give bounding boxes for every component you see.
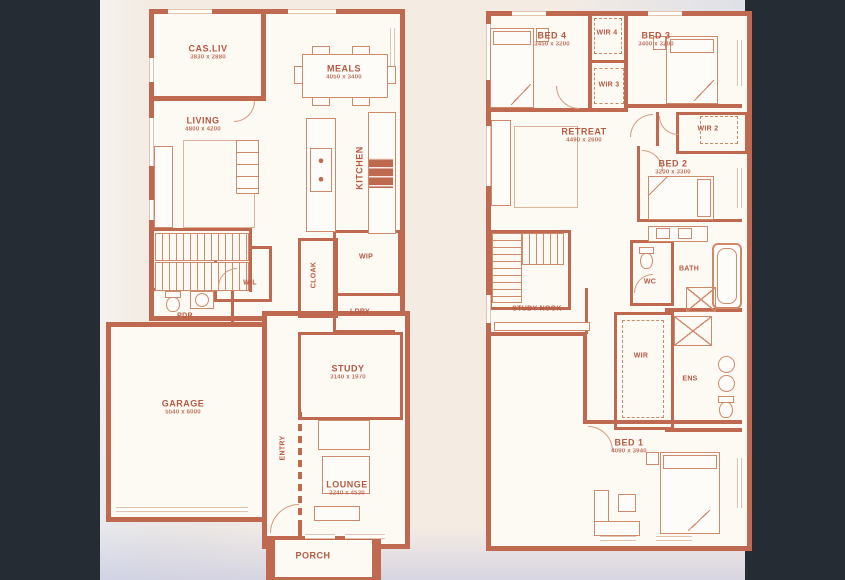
window bbox=[648, 11, 682, 16]
garage-door-opening bbox=[116, 507, 248, 512]
sofa-icon bbox=[594, 521, 640, 536]
room-name: WIR 3 bbox=[599, 82, 620, 89]
room-label-pdr: PDR bbox=[177, 313, 193, 322]
room-label-bed3: BED 3 3400 x 3200 bbox=[638, 31, 674, 50]
room-label-wil: WIL bbox=[243, 280, 257, 289]
wall bbox=[333, 288, 336, 332]
window bbox=[168, 9, 212, 14]
room-name: BED 3 bbox=[641, 31, 670, 41]
desk-icon bbox=[494, 322, 590, 331]
room-label-wc: WC bbox=[644, 279, 656, 288]
room-label-retreat: RETREAT 4490 x 2600 bbox=[561, 127, 606, 146]
room-name: LOUNGE bbox=[326, 480, 368, 490]
room-label-lounge: LOUNGE 3240 x 4530 bbox=[326, 480, 368, 499]
bathtub-inner bbox=[717, 248, 737, 304]
room-name: WC bbox=[644, 279, 656, 286]
room-label-bed2: BED 2 3200 x 3300 bbox=[655, 159, 691, 178]
room-name: PDR bbox=[177, 313, 193, 320]
room-name: WIL bbox=[243, 280, 257, 287]
room-label-wir2: WIR 2 bbox=[698, 126, 719, 135]
robe-icon bbox=[622, 320, 664, 418]
chair-icon bbox=[312, 46, 330, 55]
bed-fold-line bbox=[688, 510, 710, 531]
bed-fold-line bbox=[694, 80, 714, 101]
room-name: BATH bbox=[679, 266, 699, 273]
toilet-icon bbox=[166, 297, 180, 312]
left-dark-band bbox=[0, 0, 100, 580]
window bbox=[305, 534, 335, 539]
window bbox=[656, 536, 692, 541]
wall bbox=[583, 332, 587, 424]
garage-outline bbox=[106, 322, 268, 522]
room-label-ens: ENS bbox=[682, 376, 697, 385]
chair-icon bbox=[352, 46, 370, 55]
room-dims: 4490 x 2600 bbox=[561, 138, 606, 146]
basin-icon bbox=[678, 228, 692, 239]
room-dims: 5540 x 6000 bbox=[162, 410, 205, 418]
basin-icon bbox=[195, 293, 209, 307]
pillow-icon bbox=[697, 179, 711, 217]
room-label-wir3: WIR 3 bbox=[599, 82, 620, 91]
window bbox=[486, 295, 491, 323]
room-dims: 3200 x 3300 bbox=[655, 170, 691, 178]
shower-icon bbox=[674, 316, 712, 346]
room-name: GARAGE bbox=[162, 399, 205, 409]
room-name: ENS bbox=[682, 376, 697, 383]
window bbox=[149, 58, 154, 82]
wall bbox=[588, 60, 628, 63]
room-name: ENTRY bbox=[280, 436, 287, 461]
room-label-kitchen: KITCHEN bbox=[354, 146, 365, 190]
room-label-ldry: LDRY bbox=[350, 309, 370, 318]
chair-icon bbox=[352, 97, 370, 106]
stairs bbox=[492, 233, 522, 303]
room-label-entry: ENTRY bbox=[280, 436, 289, 461]
wip-outline bbox=[333, 230, 401, 296]
wall bbox=[154, 228, 252, 231]
wall bbox=[588, 108, 628, 112]
room-label-cloak: CLOAK bbox=[311, 262, 320, 288]
basin-icon bbox=[718, 356, 735, 373]
stairs bbox=[522, 233, 564, 265]
window bbox=[737, 40, 742, 86]
room-label-wir4: WIR 4 bbox=[597, 30, 618, 39]
room-name: RETREAT bbox=[561, 127, 606, 137]
room-name: KITCHEN bbox=[354, 146, 364, 190]
room-name: BED 1 bbox=[614, 438, 643, 448]
sofa-icon bbox=[154, 146, 173, 228]
window bbox=[345, 534, 385, 539]
shelf-unit-icon bbox=[236, 140, 259, 194]
room-dims: 3240 x 4530 bbox=[326, 491, 368, 499]
room-dims: 3400 x 3200 bbox=[638, 42, 674, 50]
room-dims: 3830 x 2880 bbox=[188, 55, 227, 63]
room-name: WIR 4 bbox=[597, 30, 618, 37]
room-name: BED 4 bbox=[537, 31, 566, 41]
pantry-shelves bbox=[369, 158, 393, 188]
room-name: MEALS bbox=[327, 64, 361, 74]
room-name: CLOAK bbox=[311, 262, 318, 288]
bed-fold-line bbox=[648, 176, 668, 196]
room-name: WIR 2 bbox=[698, 126, 719, 133]
room-name: STUDY NOOK bbox=[512, 306, 562, 313]
room-name: WIP bbox=[359, 254, 373, 261]
wall bbox=[583, 420, 742, 424]
tv-unit-icon bbox=[314, 506, 360, 521]
room-name: CAS.LIV bbox=[188, 44, 227, 54]
toilet-icon bbox=[640, 253, 653, 269]
room-label-garage: GARAGE 5540 x 6000 bbox=[162, 399, 205, 418]
room-dims: 3140 x 1970 bbox=[330, 375, 366, 383]
chair-icon bbox=[312, 97, 330, 106]
window bbox=[737, 168, 742, 208]
room-name: STUDY bbox=[331, 364, 364, 374]
window bbox=[512, 11, 546, 16]
chair-icon bbox=[387, 66, 396, 84]
sofa-icon bbox=[491, 120, 511, 206]
room-label-bed4: BED 4 3450 x 3200 bbox=[534, 31, 570, 50]
bedside-table-icon bbox=[646, 452, 659, 465]
room-dims: 4090 x 3940 bbox=[611, 449, 647, 457]
room-name: PORCH bbox=[295, 550, 330, 560]
wall bbox=[665, 428, 742, 432]
room-label-meals: MEALS 4050 x 3400 bbox=[326, 64, 362, 83]
right-dark-band bbox=[745, 0, 845, 580]
pillow-icon bbox=[670, 39, 714, 53]
basin-icon bbox=[718, 375, 735, 392]
window bbox=[737, 458, 742, 508]
pillow-icon bbox=[663, 455, 717, 469]
room-label-study: STUDY 3140 x 1970 bbox=[330, 364, 366, 383]
room-dims: 4800 x 4200 bbox=[185, 127, 221, 135]
chair-icon bbox=[294, 66, 303, 84]
side-table-icon bbox=[618, 494, 636, 512]
shower-icon bbox=[686, 287, 716, 312]
pillow-icon bbox=[493, 31, 531, 45]
room-label-living: LIVING 4800 x 4200 bbox=[185, 116, 221, 135]
window bbox=[288, 9, 336, 14]
room-label-bed1: BED 1 4090 x 3940 bbox=[611, 438, 647, 457]
room-label-bath: BATH bbox=[679, 266, 699, 275]
room-name: WIR bbox=[634, 353, 649, 360]
room-label-casliv: CAS.LIV 3830 x 2880 bbox=[188, 44, 227, 63]
bathtub-icon bbox=[712, 243, 742, 309]
wall bbox=[491, 332, 587, 336]
room-dims: 3450 x 3200 bbox=[534, 42, 570, 50]
room-label-studynook: STUDY NOOK bbox=[512, 306, 562, 315]
room-name: BED 2 bbox=[658, 159, 687, 169]
room-dims: 4050 x 3400 bbox=[326, 75, 362, 83]
cooktop-icon bbox=[310, 148, 332, 192]
sofa-icon bbox=[318, 420, 370, 450]
toilet-icon bbox=[719, 402, 733, 418]
window bbox=[600, 536, 636, 541]
room-name: LDRY bbox=[350, 309, 370, 316]
room-label-porch: PORCH bbox=[295, 550, 330, 561]
floor-plan-scan: CAS.LIV 3830 x 2880 MEALS 4050 x 3400 LI… bbox=[0, 0, 845, 580]
room-name: LIVING bbox=[186, 116, 219, 126]
room-label-wip: WIP bbox=[359, 254, 373, 263]
wall bbox=[637, 146, 640, 222]
wall bbox=[298, 412, 302, 420]
room-label-wir: WIR bbox=[634, 353, 649, 362]
wall bbox=[624, 104, 742, 108]
basin-icon bbox=[656, 228, 670, 239]
bed-fold-line bbox=[511, 84, 531, 105]
wall bbox=[261, 9, 266, 101]
stairs bbox=[155, 233, 249, 261]
